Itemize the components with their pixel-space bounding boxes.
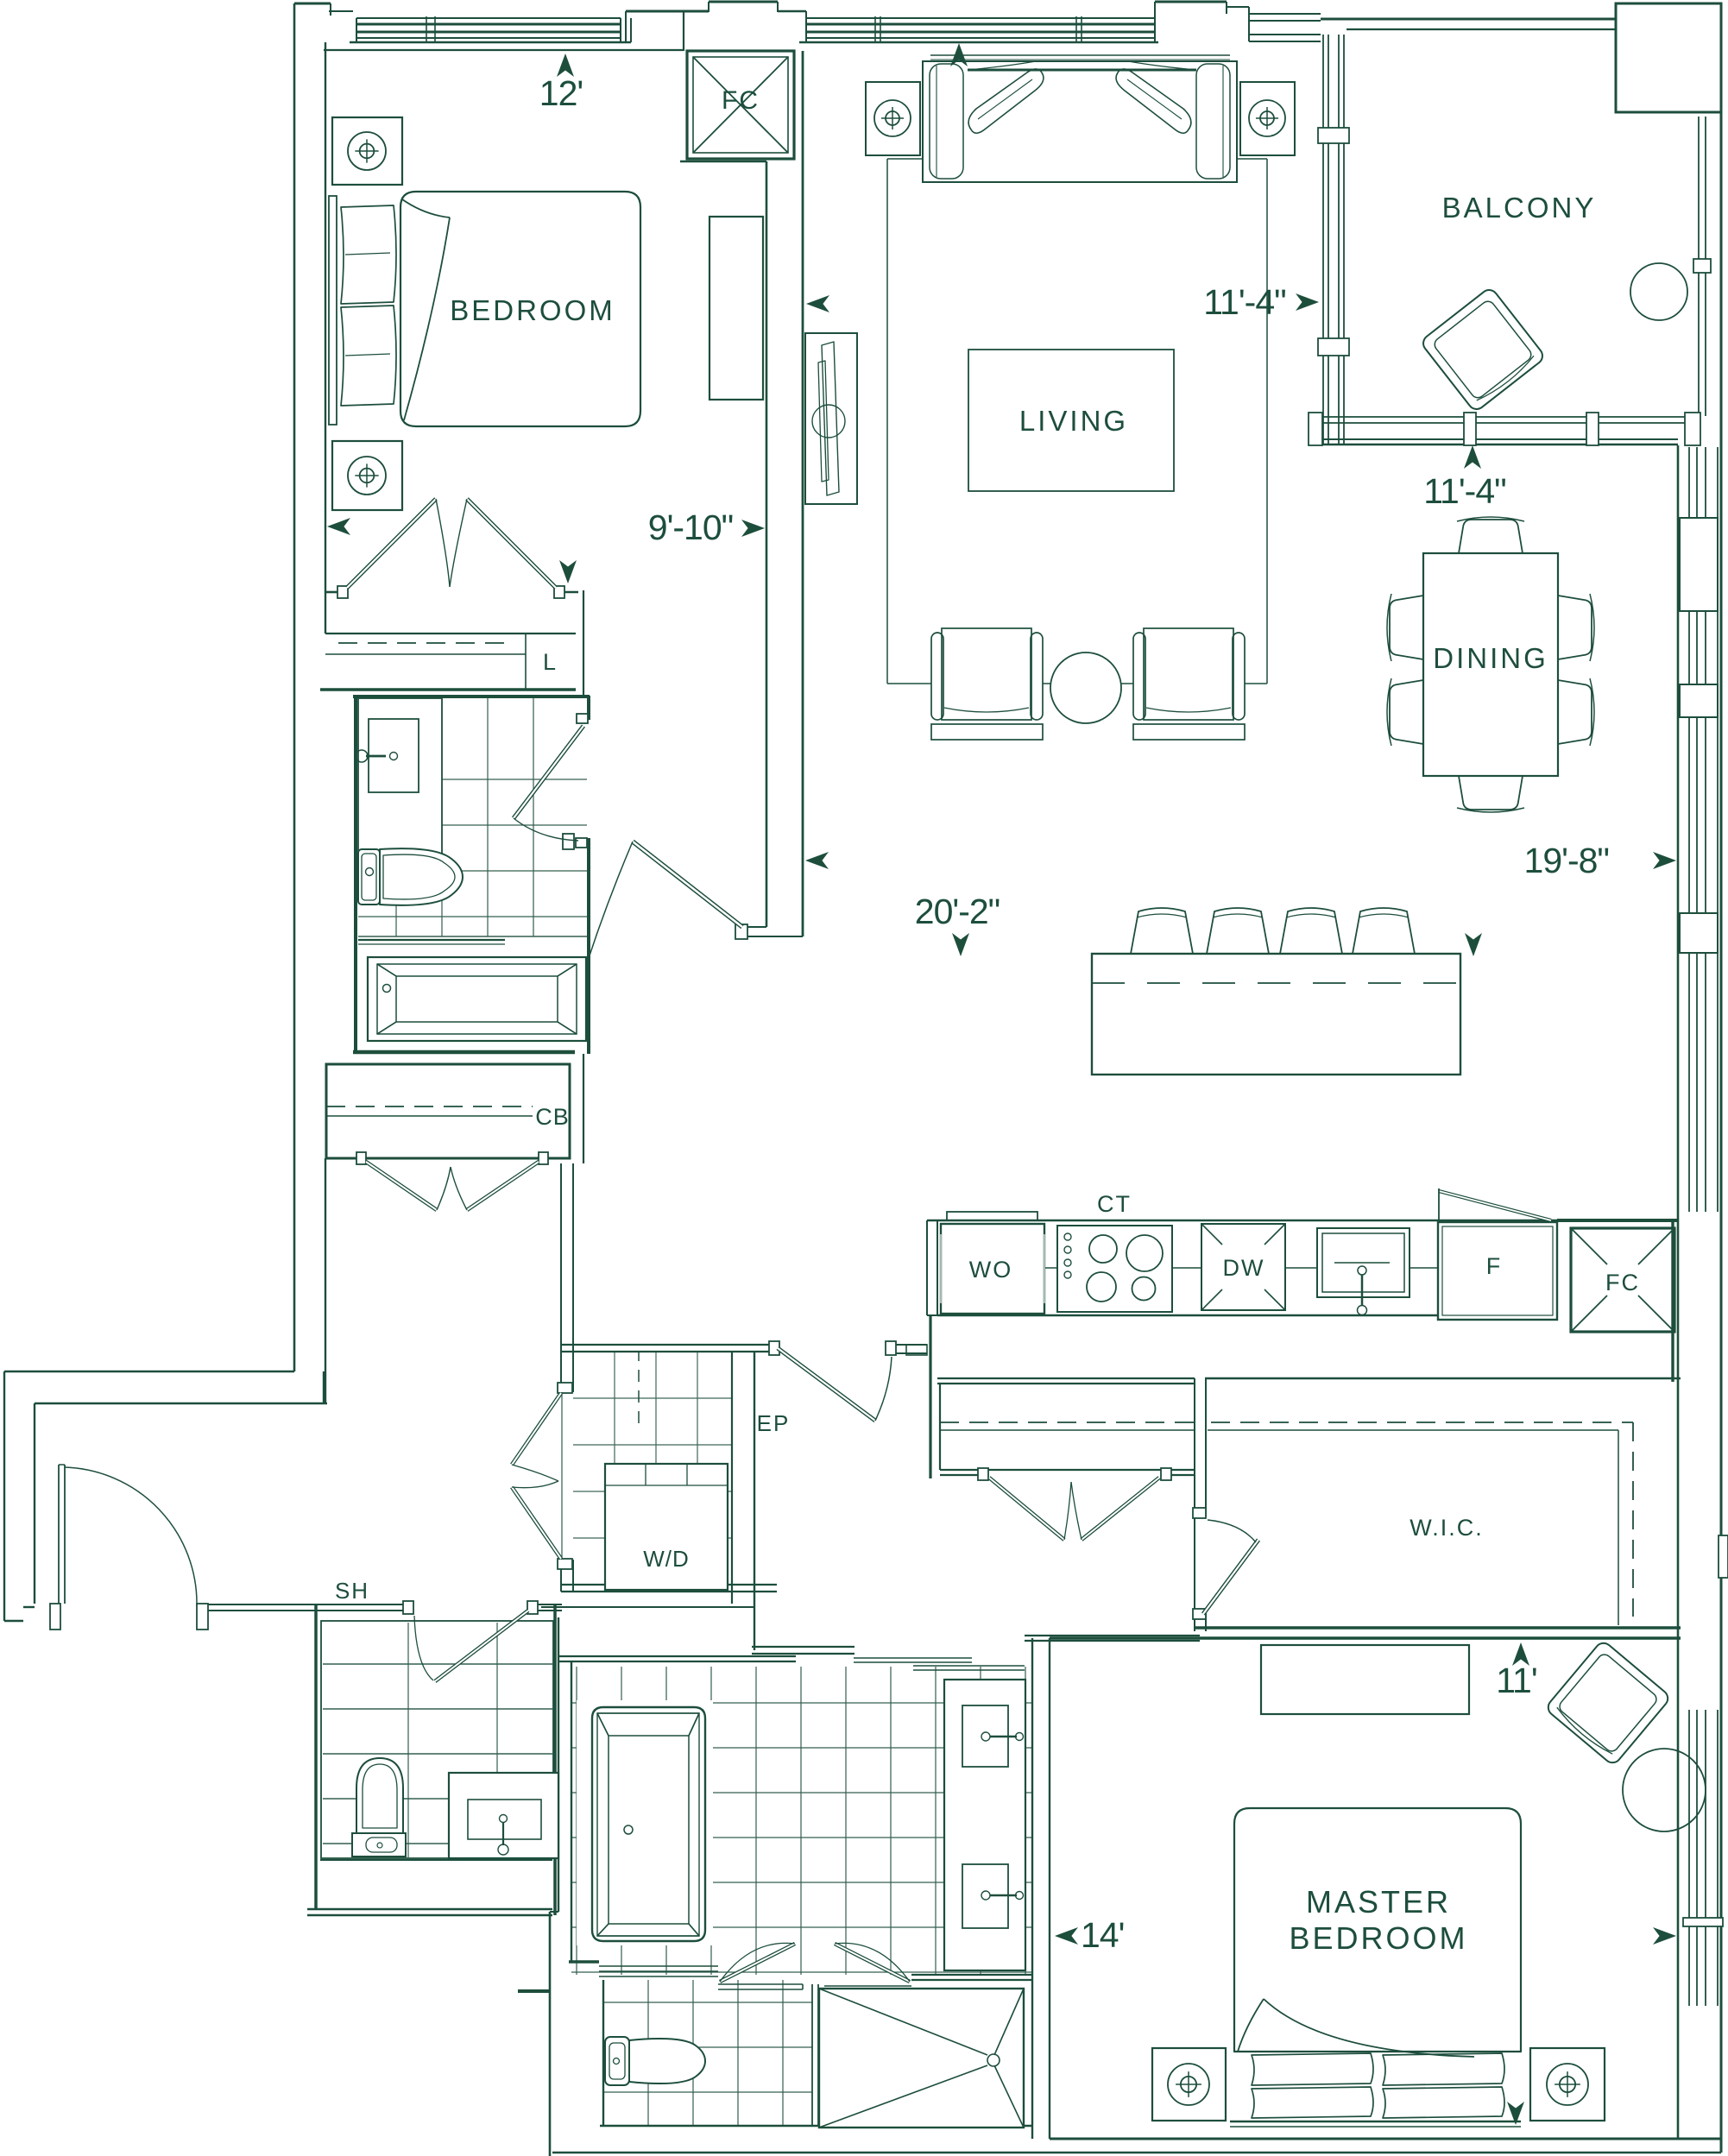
svg-text:BALCONY: BALCONY <box>1442 192 1597 224</box>
svg-text:CB: CB <box>535 1104 570 1130</box>
svg-text:11'-4": 11'-4" <box>1203 282 1285 322</box>
svg-text:L: L <box>543 649 557 675</box>
svg-text:FC: FC <box>722 86 760 115</box>
svg-text:20'-2": 20'-2" <box>915 892 1000 931</box>
svg-text:F: F <box>1486 1253 1503 1279</box>
svg-text:BEDROOM: BEDROOM <box>1289 1920 1467 1956</box>
svg-text:W/D: W/D <box>643 1546 690 1572</box>
svg-text:MASTER: MASTER <box>1306 1884 1451 1920</box>
svg-text:19'-8": 19'-8" <box>1524 841 1609 880</box>
svg-text:SH: SH <box>335 1578 369 1604</box>
svg-text:FC: FC <box>1605 1270 1640 1295</box>
svg-text:11'-4": 11'-4" <box>1423 471 1505 511</box>
svg-text:CT: CT <box>1097 1191 1132 1217</box>
svg-text:12': 12' <box>539 73 583 113</box>
svg-text:EP: EP <box>757 1410 791 1436</box>
svg-text:11': 11' <box>1496 1661 1536 1700</box>
svg-text:DINING: DINING <box>1433 642 1548 674</box>
svg-text:LIVING: LIVING <box>1019 405 1128 437</box>
svg-text:14': 14' <box>1081 1915 1124 1955</box>
svg-text:BEDROOM: BEDROOM <box>450 294 615 326</box>
svg-text:DW: DW <box>1223 1255 1265 1281</box>
svg-text:WO: WO <box>969 1257 1013 1283</box>
svg-text:W.I.C.: W.I.C. <box>1410 1515 1484 1541</box>
svg-text:9'-10": 9'-10" <box>648 507 733 547</box>
